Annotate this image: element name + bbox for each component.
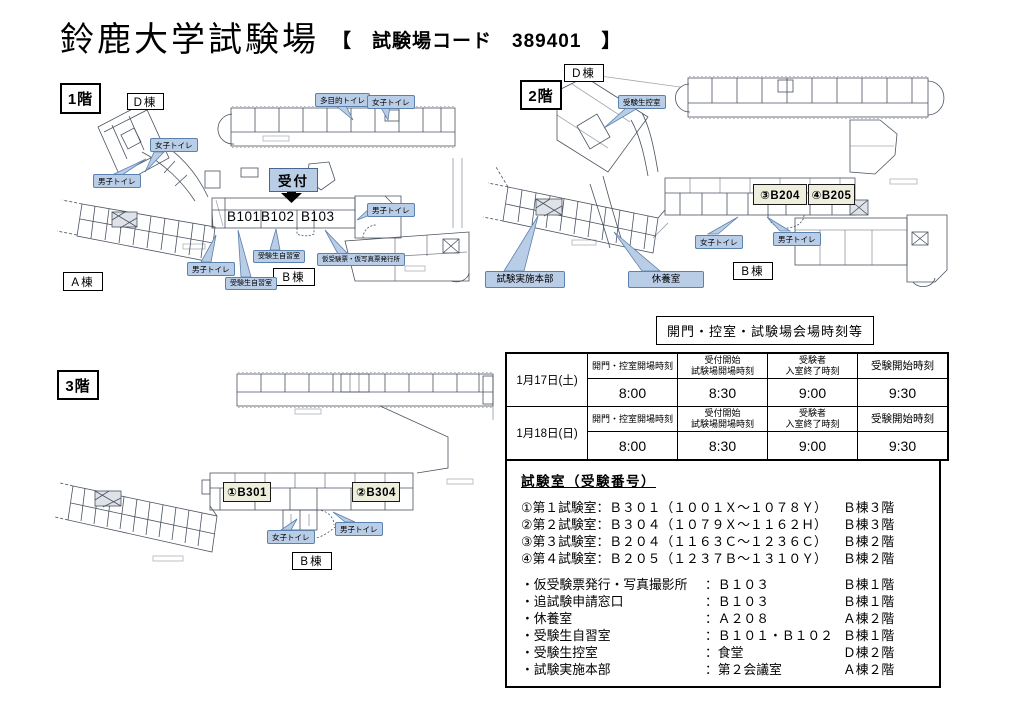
- facility-room: ：Ｂ１０１・Ｂ１０２: [705, 627, 843, 644]
- callout-womens-toilet-3f: 女子トイレ: [267, 530, 315, 544]
- schedule-header-cell: 受験開始時刻: [858, 407, 949, 432]
- schedule-header-cell: 受験開始時刻: [858, 353, 949, 379]
- facility-name: ・受験生自習室: [521, 627, 705, 644]
- list-item: ・休養室：Ａ２０８Ａ棟２階: [521, 610, 925, 627]
- exam-room-location: Ｂ棟３階: [843, 499, 894, 516]
- room-box-b301: ①B301: [223, 482, 271, 502]
- facility-room: ：Ｂ１０３: [705, 593, 843, 610]
- callout-self-study-room-1: 受験生自習室: [253, 250, 305, 263]
- list-item: ・追試験申請窓口：Ｂ１０３Ｂ棟１階: [521, 593, 925, 610]
- callout-rest-room: 休養室: [628, 271, 704, 288]
- facility-location: Ｄ棟２階: [843, 644, 894, 661]
- facility-location: Ａ棟２階: [843, 661, 894, 678]
- list-item: ・受験生自習室：Ｂ１０１・Ｂ１０２Ｂ棟１階: [521, 627, 925, 644]
- site-code: 【 試験場コード 389401 】: [332, 26, 621, 53]
- floor3-plan: 3階 B棟 女子トイレ 男子トイレ ①B301 ②B304: [55, 360, 520, 595]
- schedule-title: 開門・控室・試験場会場時刻等: [656, 316, 874, 345]
- building-label-b1: B棟: [273, 268, 315, 286]
- schedule-date-day1: 1月17日(土): [506, 353, 588, 407]
- exam-room-info-title: 試験室（受験番号）: [521, 470, 925, 490]
- list-item: ④第４試験室：Ｂ２０５（１２３７Ｂ～１３１０Ｙ）Ｂ棟２階: [521, 550, 925, 567]
- exam-site-map-page: 鈴鹿大学試験場 【 試験場コード 389401 】: [0, 0, 1024, 724]
- facility-name: ・受験生控室: [521, 644, 705, 661]
- floor2-plan: 2階 D棟 B棟 受験生控室 女子トイレ 男子トイレ 試験実施本部 休養室 ③B…: [480, 60, 1024, 310]
- schedule-header-cell: 開門・控室開場時刻: [588, 353, 678, 379]
- callout-mens-toilet-left: 男子トイレ: [187, 262, 235, 276]
- facility-location: Ｂ棟１階: [843, 576, 894, 593]
- schedule-time-cell: 8:30: [678, 432, 768, 461]
- facility-name: ・追試験申請窓口: [521, 593, 705, 610]
- schedule-header-cell: 受付開始 試験場開場時刻: [678, 407, 768, 432]
- room-box-b304: ②B304: [352, 482, 400, 502]
- room-text-b102: B102: [261, 209, 295, 224]
- floor1-plan: 1階 D棟 A棟 B棟 多目的トイレ 女子トイレ 女子トイレ 男子トイレ 男子ト…: [55, 78, 470, 305]
- exam-room-entry: ④第４試験室：Ｂ２０５（１２３７Ｂ～１３１０Ｙ）: [521, 550, 843, 567]
- schedule-header-cell: 受験者 入室終了時刻: [768, 353, 858, 379]
- building-label-b3: B棟: [292, 552, 332, 570]
- callout-womens-toilet-2f: 女子トイレ: [695, 235, 743, 249]
- facility-location: Ｂ棟１階: [843, 593, 894, 610]
- list-item: ・受験生控室：食堂Ｄ棟２階: [521, 644, 925, 661]
- table-row: 1月17日(土) 開門・控室開場時刻 受付開始 試験場開場時刻 受験者 入室終了…: [506, 353, 948, 379]
- floor3-label: 3階: [57, 370, 99, 400]
- building-label-d1: D棟: [127, 93, 164, 110]
- facility-room: ：Ｂ１０３: [705, 576, 843, 593]
- list-item: ②第２試験室：Ｂ３０４（１０７９Ｘ～１１６２Ｈ）Ｂ棟３階: [521, 516, 925, 533]
- schedule-header-cell: 受験者 入室終了時刻: [768, 407, 858, 432]
- callout-temp-ticket-office: 仮受験票・仮写真票発行所: [317, 253, 405, 266]
- floor1-drawing: [55, 78, 470, 305]
- list-item: ・試験実施本部：第２会議室Ａ棟２階: [521, 661, 925, 678]
- room-box-b204: ③B204: [753, 184, 807, 205]
- callout-exam-hq: 試験実施本部: [485, 271, 565, 288]
- schedule-time-cell: 9:00: [768, 379, 858, 407]
- facility-room: ：第２会議室: [705, 661, 843, 678]
- schedule-time-cell: 8:30: [678, 379, 768, 407]
- schedule-date-day2: 1月18日(日): [506, 407, 588, 461]
- schedule-time-cell: 8:00: [588, 432, 678, 461]
- schedule-table: 1月17日(土) 開門・控室開場時刻 受付開始 試験場開場時刻 受験者 入室終了…: [505, 352, 949, 461]
- exam-room-location: Ｂ棟２階: [843, 533, 894, 550]
- floor2-label: 2階: [520, 80, 562, 110]
- facility-name: ・仮受験票発行・写真撮影所: [521, 576, 705, 593]
- building-label-d2: D棟: [564, 64, 604, 82]
- facility-room: ：食堂: [705, 644, 843, 661]
- exam-room-entry: ②第２試験室：Ｂ３０４（１０７９Ｘ～１１６２Ｈ）: [521, 516, 843, 533]
- schedule-header-cell: 受付開始 試験場開場時刻: [678, 353, 768, 379]
- room-text-b101: B101: [227, 209, 261, 224]
- schedule-time-cell: 9:30: [858, 432, 949, 461]
- callout-mens-toilet-d: 男子トイレ: [93, 174, 141, 188]
- building-label-a1: A棟: [63, 272, 103, 291]
- exam-room-location: Ｂ棟２階: [843, 550, 894, 567]
- callout-multipurpose-toilet: 多目的トイレ: [315, 93, 370, 107]
- table-row: 1月18日(日) 開門・控室開場時刻 受付開始 試験場開場時刻 受験者 入室終了…: [506, 407, 948, 432]
- schedule-time-cell: 8:00: [588, 379, 678, 407]
- schedule-time-cell: 9:30: [858, 379, 949, 407]
- schedule-header-cell: 開門・控室開場時刻: [588, 407, 678, 432]
- callout-womens-toilet-d: 女子トイレ: [150, 138, 198, 152]
- room-box-b205: ④B205: [808, 184, 855, 205]
- callout-mens-toilet-2f: 男子トイレ: [773, 232, 821, 246]
- exam-room-info-box: 試験室（受験番号） ①第１試験室：Ｂ３０１（１００１Ｘ～１０７８Ｙ）Ｂ棟３階 ②…: [505, 459, 941, 688]
- callout-mens-toilet-right: 男子トイレ: [367, 203, 415, 217]
- callout-waiting-room: 受験生控室: [618, 95, 666, 109]
- exam-room-entry: ③第３試験室：Ｂ２０４（１１６３Ｃ～１２３６Ｃ）: [521, 533, 843, 550]
- list-item: ③第３試験室：Ｂ２０４（１１６３Ｃ～１２３６Ｃ）Ｂ棟２階: [521, 533, 925, 550]
- callout-mens-toilet-3f: 男子トイレ: [335, 522, 383, 536]
- reception-label: 受付: [269, 168, 318, 192]
- callout-womens-toilet-top: 女子トイレ: [367, 95, 415, 109]
- schedule-time-cell: 9:00: [768, 432, 858, 461]
- page-title: 鈴鹿大学試験場: [60, 12, 319, 61]
- facility-name: ・休養室: [521, 610, 705, 627]
- callout-self-study-room-2: 受験生自習室: [225, 277, 277, 290]
- exam-room-entry: ①第１試験室：Ｂ３０１（１００１Ｘ～１０７８Ｙ）: [521, 499, 843, 516]
- facility-room: ：Ａ２０８: [705, 610, 843, 627]
- list-item: ・仮受験票発行・写真撮影所：Ｂ１０３Ｂ棟１階: [521, 576, 925, 593]
- building-label-b2: B棟: [733, 262, 773, 280]
- list-item: ①第１試験室：Ｂ３０１（１００１Ｘ～１０７８Ｙ）Ｂ棟３階: [521, 499, 925, 516]
- room-text-b103: B103: [301, 209, 335, 224]
- facility-location: Ａ棟２階: [843, 610, 894, 627]
- floor1-label: 1階: [60, 83, 101, 114]
- floor3-drawing: [55, 360, 520, 595]
- facility-location: Ｂ棟１階: [843, 627, 894, 644]
- facility-name: ・試験実施本部: [521, 661, 705, 678]
- exam-room-location: Ｂ棟３階: [843, 516, 894, 533]
